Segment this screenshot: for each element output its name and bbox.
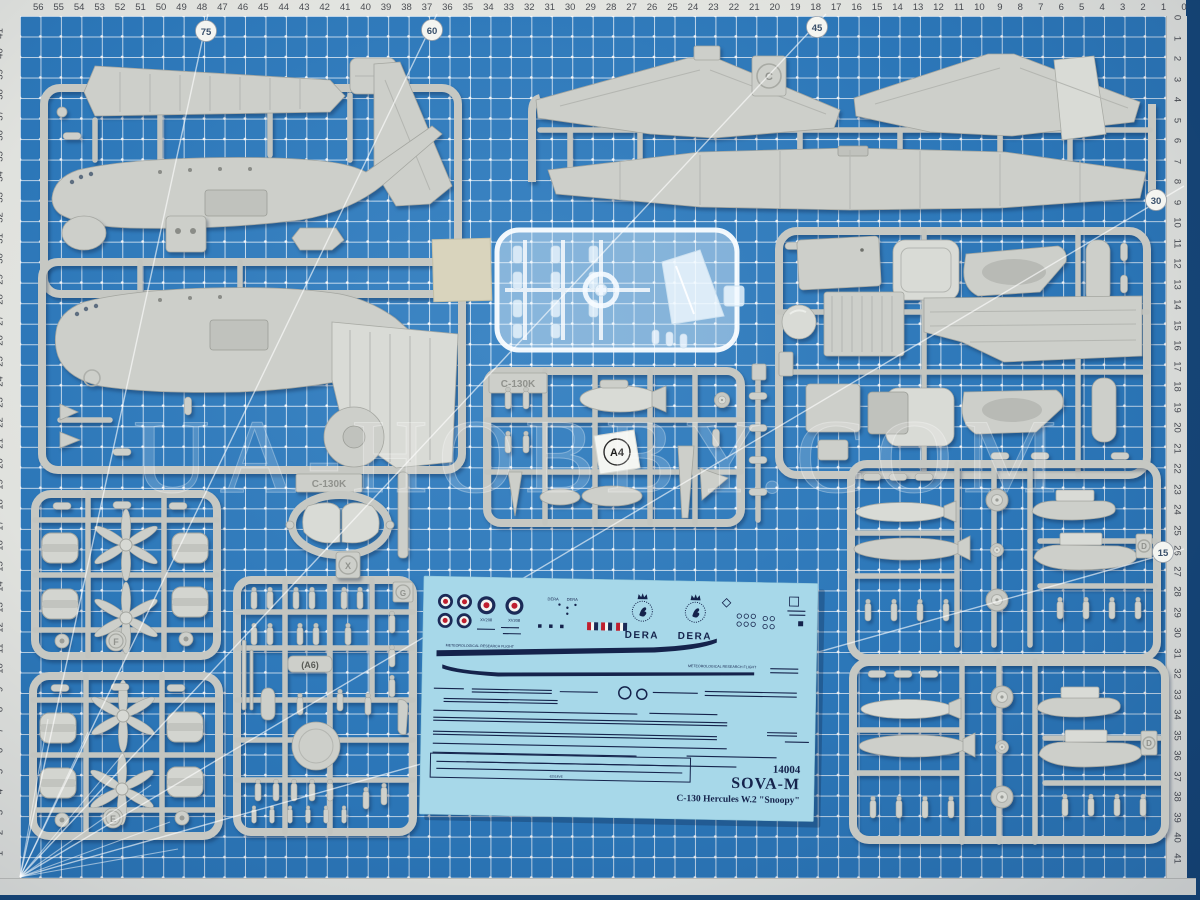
decal-manufacturer: SOVA-M (731, 775, 800, 793)
sprue-pods-d2: D (853, 661, 1165, 842)
angle-label-30: 30 (1151, 196, 1162, 207)
decal-sheet: XV208 XV208 DERA DERA DERA DERA METEOROL (419, 576, 825, 828)
sprue-tag-g: G (400, 589, 406, 598)
sprue-wings-tailplanes: C (532, 46, 1152, 210)
sprue-propellers-f: F (35, 494, 217, 656)
photo-model-kit-on-cutting-mat: 5655545352515049484746454443424140393837… (0, 0, 1200, 900)
watermark-text: UA-HOBBY.COM (133, 398, 1067, 515)
sprue-tag-d2: D (1146, 739, 1152, 748)
sprue-sonobuoys-g: G (A6) (237, 580, 413, 832)
decal-small-dera-pair: DERA DERA (548, 596, 579, 602)
angle-label-15: 15 (1158, 548, 1169, 559)
sprue-clear-parts (497, 230, 744, 350)
sprue-propellers-e: E (33, 676, 219, 836)
angle-label-75: 75 (201, 27, 212, 38)
sprue-tag-d1: D (1141, 542, 1147, 551)
angle-label-45: 45 (812, 23, 823, 34)
decal-dera-wordmark-2: DERA (678, 631, 713, 643)
sprue-tag-f: F (113, 637, 119, 647)
decal-kit-number: 14004 (773, 764, 801, 777)
decal-registration-2: XV208 (508, 618, 521, 623)
angle-label-60: 60 (427, 26, 438, 37)
decal-dera-wordmark-1: DERA (625, 630, 660, 642)
sprue-tag-x: X (345, 561, 351, 571)
decal-registration-1: XV208 (480, 617, 493, 622)
beige-card (432, 238, 492, 301)
sprue-tag-a6: (A6) (301, 660, 319, 670)
decal-stencil-code: 62518VE (550, 774, 563, 778)
